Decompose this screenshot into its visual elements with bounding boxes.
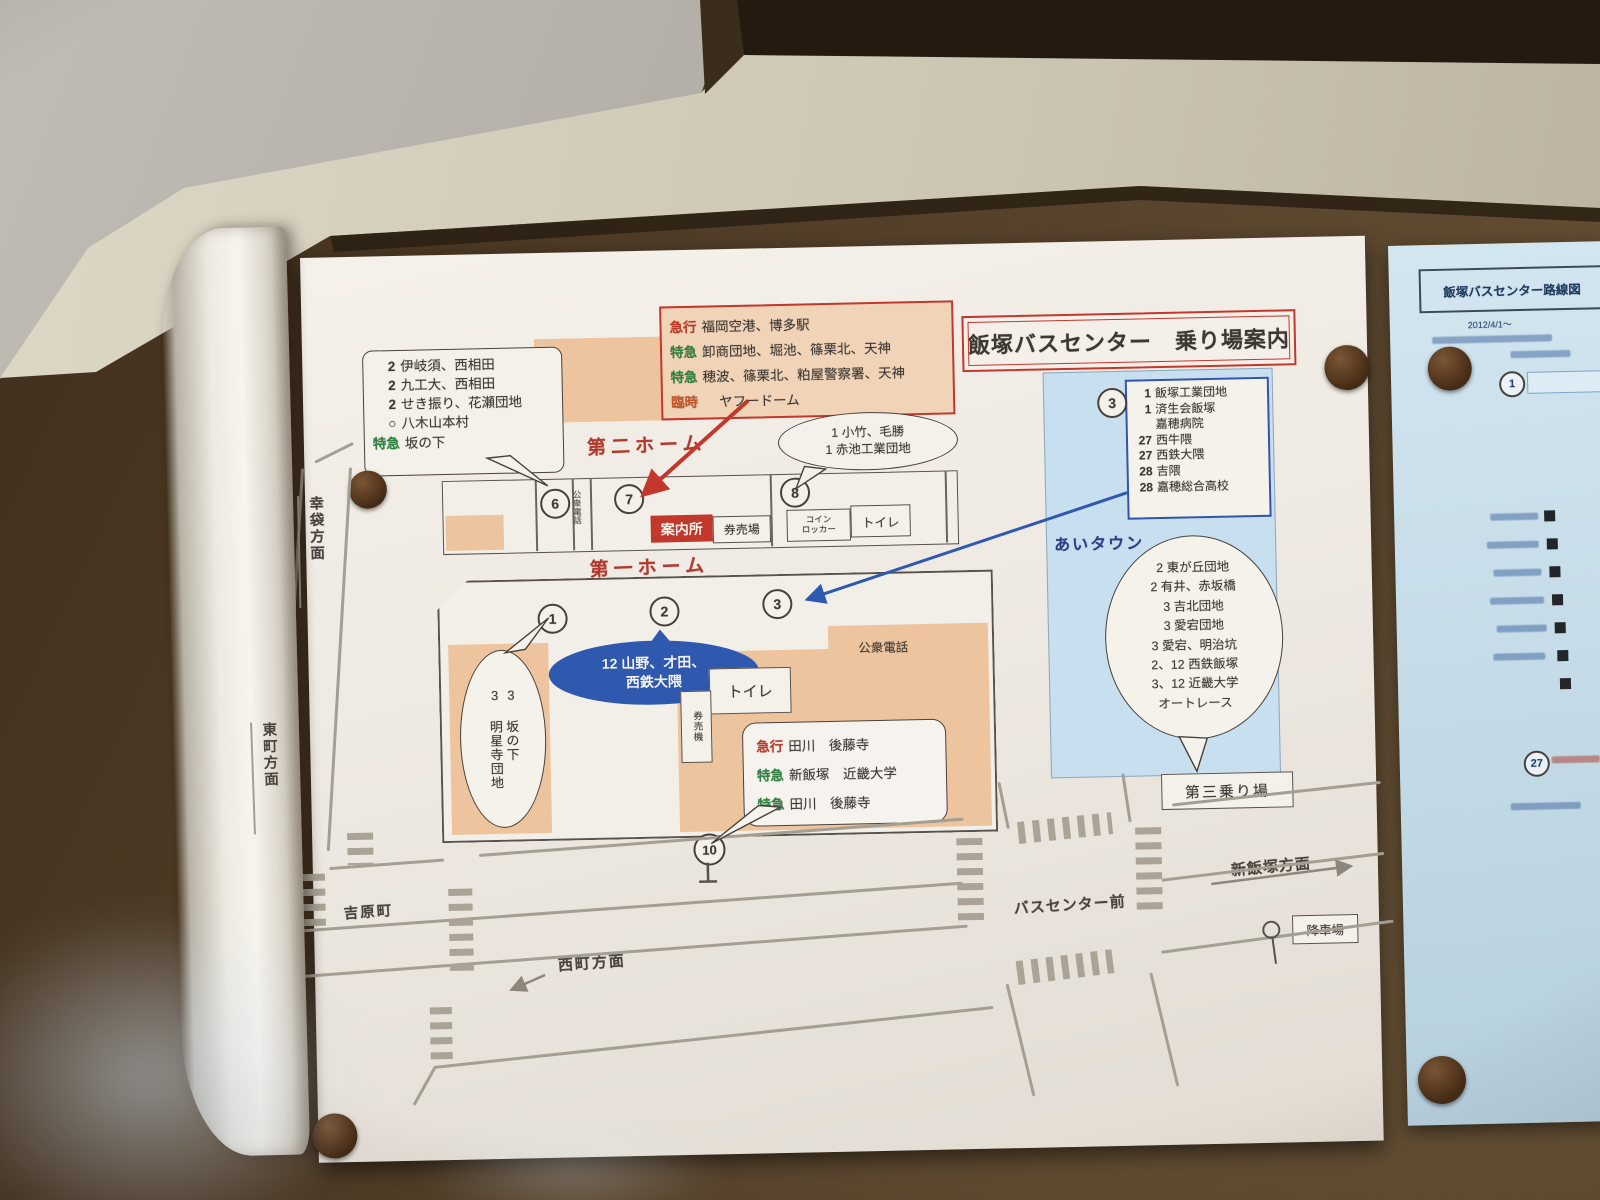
route-stop-1: 1 (1499, 371, 1526, 398)
magnet-pin (1418, 1056, 1466, 1104)
illegible-text-line (1497, 624, 1547, 632)
ticket-machine-label: 券売機 (689, 711, 704, 743)
route-node (1555, 622, 1566, 633)
shin-iizuka-direction-label: 新飯塚方面 (1230, 852, 1312, 880)
illegible-text-line (1511, 802, 1581, 811)
destination: 吉隈 (1157, 464, 1181, 480)
illegible-text-line (1510, 350, 1570, 358)
stop10-destinations-bubble: 急行田川 後藤寺 特急新飯塚 近畿大学 特急田川 後藤寺 (742, 719, 948, 827)
stop2-destinations-bubble: 2伊岐須、西相田 2九工大、西相田 2せき振り、花瀬団地 ○八木山本村 特急坂の… (362, 347, 565, 477)
third-boarding-area-label: 第三乗り場 (1185, 779, 1270, 802)
coin-locker-label: ロッカー (802, 525, 836, 535)
destination: 嘉穂病院 (1156, 416, 1204, 433)
route-number: 27 (1134, 449, 1152, 465)
stop-number: 1 (549, 611, 557, 627)
nishimachi-direction-label: 西町方面 (557, 950, 626, 976)
stop-number: 2 (660, 603, 668, 619)
destination: 西牛隈 (1156, 432, 1192, 448)
route-node (1547, 538, 1558, 549)
aitown-label: あいタウン (1054, 529, 1144, 555)
route-destinations: 穂波、篠栗北、粕屋警察署、天神 (702, 361, 905, 385)
route-type-label: 急行 (669, 315, 696, 336)
route-node (1552, 594, 1563, 605)
destination: 西鉄大隈 (1156, 447, 1204, 464)
higashimachi-direction-label: 東町方面 (250, 722, 283, 835)
drop-off-label: 降車場 (1306, 919, 1344, 939)
illegible-text-line (1552, 755, 1600, 763)
route-legend-box (1527, 370, 1600, 394)
coin-locker-sign: コイン ロッカー (786, 509, 851, 542)
yoshiwara-cho-label: 吉原町 (343, 899, 394, 924)
route-node (1544, 510, 1555, 521)
route-number: 28 (1135, 480, 1153, 496)
destination: 済生会飯塚 (1155, 400, 1215, 417)
stop-number: 27 (1531, 758, 1544, 770)
route-map-date: 2012/4/1～ (1468, 317, 1512, 331)
route-number: 1 (1133, 402, 1151, 418)
stop-number: 特急 (373, 434, 400, 454)
destination: 新飯塚 近畿大学 (789, 762, 897, 784)
stop-number: 10 (702, 842, 717, 857)
stop8-destinations-bubble: 1 小竹、毛勝 1 赤池工業団地 (777, 410, 958, 472)
kobukuro-direction-label: 幸袋方面 (297, 496, 328, 609)
destination: オートレース (1107, 692, 1283, 715)
destination: 3 坂の下 (502, 688, 520, 790)
route-type-label: 急行 (753, 735, 783, 756)
stop-number: 2 (371, 357, 395, 377)
destination: 田川 後藤寺 (788, 734, 869, 756)
route-map-title: 飯塚バスセンター路線図 (1443, 278, 1581, 300)
destination: 伊岐須、西相田 (400, 355, 495, 376)
curled-paper-edge (160, 227, 310, 1158)
destination: 八木山本村 (401, 413, 469, 434)
photo-of-bus-center-sign: 急行福岡空港、博多駅 特急卸商団地、堀池、篠栗北、天神 特急穂波、篠栗北、粕屋警… (0, 0, 1600, 1200)
destination: 西鉄大隈 (626, 672, 682, 692)
route-node (1560, 678, 1571, 689)
route-type-label: 特急 (754, 793, 784, 814)
route-destinations: ヤフードーム (719, 388, 800, 410)
stop3-routes-box: 1飯塚工業団地 1済生会飯塚 嘉穂病院 27西牛隈 27西鉄大隈 28吉隈 28… (1125, 377, 1272, 520)
route-map-poster: 飯塚バスセンター路線図 2012/4/1～ 1 27 (1388, 241, 1600, 1126)
route-number: 28 (1135, 464, 1153, 480)
public-phone-label: 公衆電話 (571, 490, 584, 524)
route-node (1549, 566, 1560, 577)
crosswalk-stripes (312, 816, 1153, 1063)
bus-stop-10: 10 (693, 833, 726, 866)
route-destinations: 卸商団地、堀池、篠栗北、天神 (702, 336, 891, 360)
third-boarding-area-sign: 第三乗り場 (1161, 771, 1294, 810)
information-office-label: 案内所 (661, 518, 703, 539)
destination: 九工大、西相田 (400, 374, 495, 395)
illegible-text-line (1432, 334, 1552, 344)
boarding-guide-poster: 急行福岡空港、博多駅 特急卸商団地、堀池、篠栗北、天神 特急穂波、篠栗北、粕屋警… (300, 236, 1384, 1163)
platform2-label: 第二ホーム (587, 428, 707, 460)
route-node (1557, 650, 1568, 661)
third-stop-destinations-bubble: 2 東が丘団地 2 有井、赤坂橋 3 吉北団地 3 愛宕団地 3 愛宕、明治坑 … (1103, 534, 1285, 742)
destination: 飯塚工業団地 (1155, 385, 1227, 402)
route-destinations: 福岡空港、博多駅 (701, 313, 809, 335)
magnet-pin (1324, 345, 1370, 391)
express-routes-box: 急行福岡空港、博多駅 特急卸商団地、堀池、篠栗北、天神 特急穂波、篠栗北、粕屋警… (659, 300, 955, 420)
destination: 3 明星寺団地 (486, 688, 504, 790)
route-type-label: 特急 (670, 365, 697, 386)
bus-center-mae-label: バスセンター前 (1013, 890, 1126, 918)
toilet-sign: トイレ (850, 504, 911, 537)
magnet-pin (1427, 346, 1472, 391)
drop-off-area-sign: 降車場 (1292, 914, 1359, 944)
destination: 1 小竹、毛勝 (831, 423, 904, 442)
illegible-text-line (1493, 569, 1541, 577)
stop-number: 7 (625, 491, 633, 507)
platform2-block (445, 515, 504, 551)
toilet-label: トイレ (727, 680, 772, 702)
destination: 坂の下 (405, 433, 446, 453)
ticket-machine-sign: 券売機 (680, 690, 713, 763)
route-type-label: 特急 (670, 340, 697, 361)
destination: 1 赤池工業団地 (825, 440, 911, 459)
ticket-office-label: 券売場 (724, 520, 760, 538)
illegible-text-line (1493, 653, 1545, 661)
destination: 嘉穂総合高校 (1157, 478, 1229, 495)
bus-stop-pole-icon (699, 851, 1280, 976)
toilet-sign: トイレ (709, 667, 792, 715)
route-type-label: 臨時 (671, 390, 698, 411)
ticket-office-sign: 券売場 (713, 515, 772, 543)
stop-number: 2 (372, 395, 396, 415)
platform1-label: 第一ホーム (589, 550, 709, 582)
information-office-sign: 案内所 (650, 514, 713, 542)
poster-title-box: 飯塚バスセンター 乗り場案内 (961, 309, 1296, 372)
destination: せき振り、花瀬団地 (401, 393, 522, 415)
poster-title: 飯塚バスセンター 乗り場案内 (968, 321, 1291, 360)
route-map-title-box: 飯塚バスセンター路線図 (1419, 265, 1600, 313)
stop-number: 1 (1509, 378, 1515, 390)
illegible-text-line (1490, 513, 1538, 521)
destination: 12 山野、才田、 (602, 653, 706, 674)
route-type-label: 特急 (754, 764, 784, 785)
route-number: 1 (1133, 386, 1151, 402)
nishimachi-arrow (511, 975, 545, 990)
route-stop-27: 27 (1523, 750, 1550, 777)
illegible-text-line (1490, 597, 1544, 605)
route-number: 27 (1134, 433, 1152, 449)
toilet-label: トイレ (862, 511, 900, 531)
illegible-text-line (1487, 541, 1539, 549)
destination: 田川 後藤寺 (789, 791, 870, 813)
stop-number: 8 (791, 485, 799, 501)
magnet-pin (348, 470, 387, 509)
stop-number: 6 (551, 496, 559, 512)
magnet-pin (312, 1113, 358, 1159)
stop-number: 3 (773, 596, 781, 612)
stop-number: ○ (372, 414, 396, 434)
stop-number: 3 (1108, 395, 1116, 411)
public-phone-label: 公衆電話 (858, 636, 908, 656)
stop-number: 2 (372, 376, 396, 396)
